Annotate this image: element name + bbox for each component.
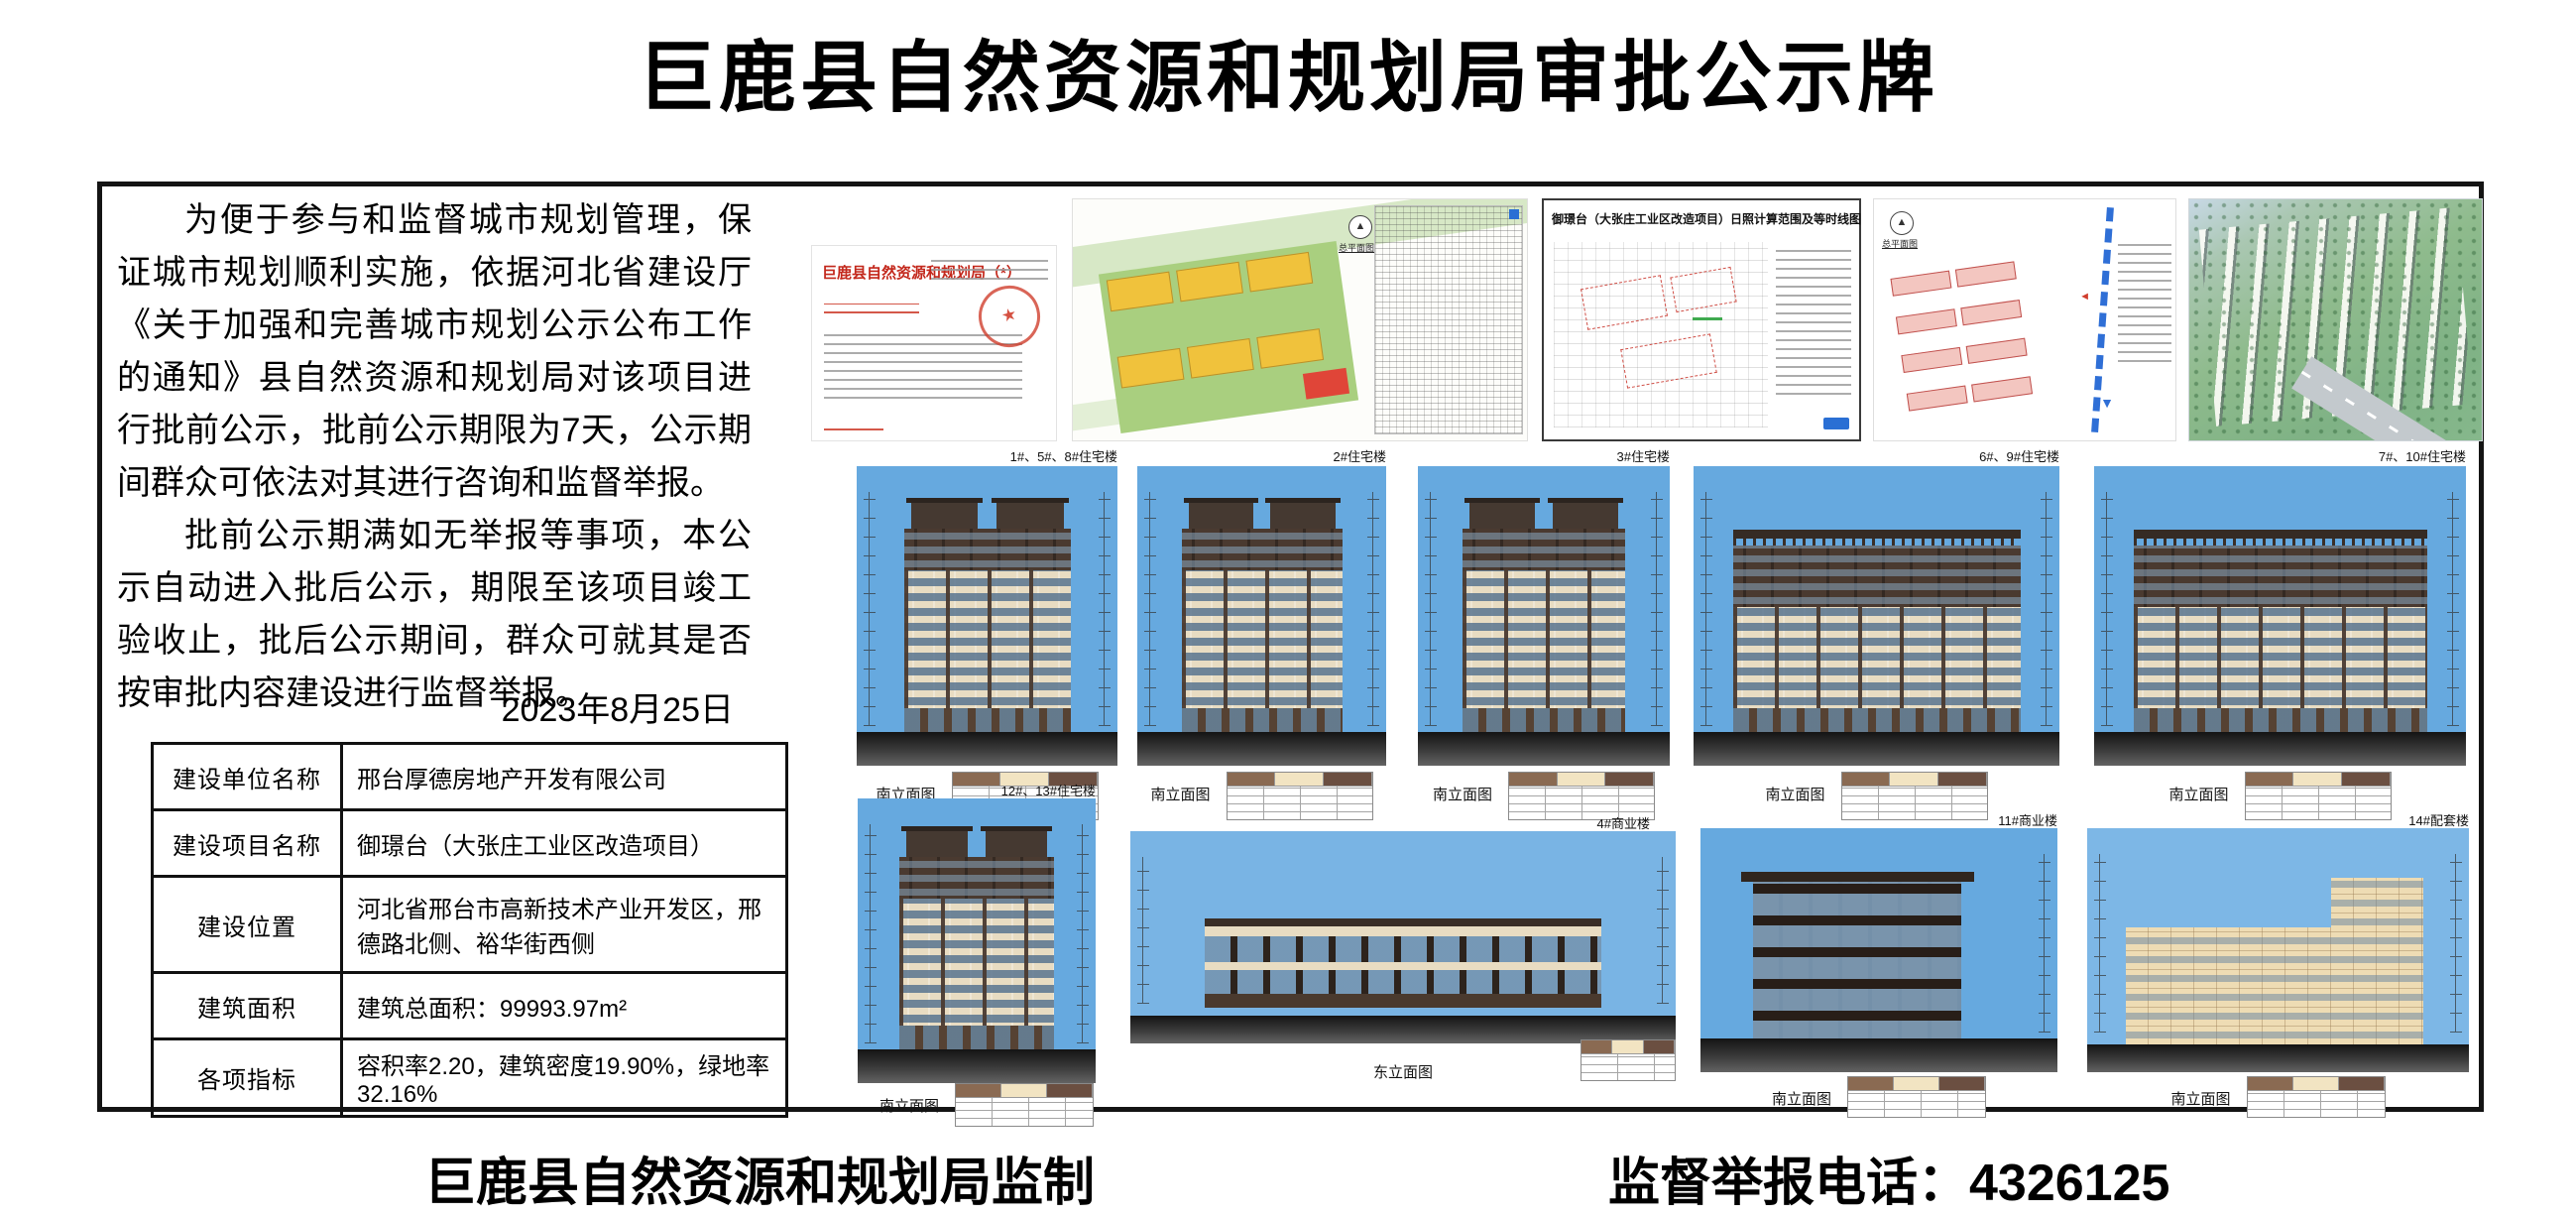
upper-floors [2134, 546, 2427, 607]
notice-text: 为便于参与和监督城市规划管理，保证城市规划顺利实施，依据河北省建设厅《关于加强和… [117, 194, 752, 720]
isoline-mark [1693, 317, 1722, 320]
commercial-building [1753, 872, 1961, 1042]
dimension-rail [2101, 492, 2113, 726]
middle-floors [904, 570, 1071, 708]
sunshine-plan-drawing [1554, 242, 1768, 427]
material-legend [1581, 1039, 1676, 1081]
document-small-text [931, 254, 1048, 280]
row-label: 建设项目名称 [153, 810, 342, 877]
elevation-panel-1-5-8 [857, 466, 1117, 766]
elevation-label: 2#住宅楼 [1137, 446, 1392, 465]
elevation-caption: 南立面图 [1772, 1076, 1831, 1109]
roof-caps [904, 503, 1071, 529]
building-footprint [1901, 347, 1962, 373]
ground-strip [1694, 732, 2059, 766]
dimension-rail [1700, 492, 1712, 726]
master-plan-label: 总平面图 [1882, 237, 1918, 250]
wall-band [1205, 926, 1601, 936]
elevation-caption: 南立面图 [1433, 772, 1492, 804]
dimension-rail [1137, 857, 1149, 1004]
table-row: 建设位置河北省邢台市高新技术产业开发区，邢德路北侧、裕华街西侧 [153, 877, 787, 973]
boundary-arrow-icon: ▼ [2100, 395, 2114, 411]
building-outline [1620, 333, 1717, 388]
wall-band [1205, 962, 1601, 970]
north-arrow-icon: ▲ [1890, 211, 1914, 235]
ground-strip [1418, 732, 1670, 766]
row-value: 容积率2.20，建筑密度19.90%，绿地率32.16% [342, 1039, 787, 1117]
middle-floors [1182, 570, 1343, 708]
table-row: 建筑面积建筑总面积：99993.97m² [153, 973, 787, 1039]
elevation-caption: 南立面图 [879, 1083, 939, 1116]
building-block [1187, 338, 1254, 379]
middle-floors [2134, 607, 2427, 708]
building-footprint [1960, 300, 2022, 325]
dimension-rail [2450, 854, 2462, 1033]
upper-floors [1733, 546, 2021, 607]
entrance-marker-icon: ◄ [2079, 291, 2090, 303]
footer-issuer: 巨鹿县自然资源和规划局监制 [424, 1141, 1095, 1215]
elevation-label: 14#配套楼 [2087, 810, 2475, 829]
elevation-label: 3#住宅楼 [1418, 446, 1676, 465]
base [1205, 994, 1601, 1008]
doc-number-line [824, 304, 919, 313]
building-footprint [1890, 271, 1951, 297]
sunshine-diagram-title: 御璟台（大张庄工业区改造项目）日照计算范围及等时线图 [1552, 210, 1853, 227]
material-legend [1847, 1076, 1986, 1118]
elevation-caption: 南立面图 [1765, 772, 1824, 804]
dimension-rail [1144, 492, 1156, 726]
elevation-label: 7#、10#住宅楼 [2094, 446, 2472, 465]
roof-caps [1182, 503, 1343, 529]
table-row: 建设单位名称邢台厚德房地产开发有限公司 [153, 744, 787, 810]
dimension-rail [1367, 492, 1379, 726]
ground-strip [2094, 732, 2466, 766]
notice-paragraph-1: 为便于参与和监督城市规划管理，保证城市规划顺利实施，依据河北省建设厅《关于加强和… [117, 194, 752, 510]
elevation-panel-14 [2087, 828, 2469, 1072]
building-cluster [1099, 241, 1358, 433]
roof-slab [2134, 530, 2427, 539]
support-building-tower [2331, 878, 2422, 1044]
caption-row: 南立面图 [1700, 1076, 2057, 1118]
panel-approval-document: 巨鹿县自然资源和规划局（*） [811, 245, 1057, 441]
elevation-panel-6-9 [1694, 466, 2059, 766]
roof [1205, 918, 1601, 926]
elevation-panel-7-10 [2094, 466, 2466, 766]
building-block [1117, 347, 1185, 388]
window-row [1205, 970, 1601, 994]
row-label: 建设单位名称 [153, 744, 342, 810]
dimension-rail [1657, 857, 1669, 1004]
residential-tower [1463, 503, 1625, 736]
project-info-table: 建设单位名称邢台厚德房地产开发有限公司 建设项目名称御璟台（大张庄工业区改造项目… [151, 742, 788, 1118]
row-label: 建设位置 [153, 877, 342, 973]
building-block [1256, 328, 1324, 369]
ground-strip [2087, 1044, 2469, 1072]
roof-slab [1733, 530, 2021, 539]
building-footprint [1896, 308, 1957, 334]
building-outline [1581, 275, 1668, 330]
residential-tower [899, 831, 1054, 1053]
notice-date: 2023年8月25日 [117, 682, 734, 731]
dimension-rail [1077, 824, 1089, 1043]
building-footprint [1966, 338, 2028, 364]
row-value: 御璟台（大张庄工业区改造项目） [342, 810, 787, 877]
building-block [1245, 252, 1313, 293]
elevation-label: 11#商业楼 [1700, 810, 2063, 829]
elevation-label: 6#、9#住宅楼 [1694, 446, 2065, 465]
upper-floors [904, 529, 1071, 570]
panel-master-plan: ▲ 总平面图 ▼ ◄ [1873, 198, 2176, 441]
overhang-roof [1741, 872, 1974, 882]
site-plan-label: 总平面图 [1339, 241, 1374, 254]
caption-row: 南立面图 [2087, 1076, 2469, 1118]
north-arrow-icon: ▲ [1348, 215, 1372, 239]
residential-tower [1182, 503, 1343, 736]
upper-floors [899, 857, 1054, 899]
support-building-main [2126, 927, 2347, 1044]
residential-slab [2134, 530, 2427, 736]
highlighted-building-block [1303, 368, 1349, 400]
building-footprint [1955, 261, 2017, 287]
residential-tower [904, 503, 1071, 736]
commercial-building [1205, 918, 1601, 1014]
middle-floors [899, 899, 1054, 1026]
material-legend [2247, 1076, 2386, 1118]
dimension-rail [2447, 492, 2459, 726]
roof-railing [1733, 539, 2021, 546]
row-value: 建筑总面积：99993.97m² [342, 973, 787, 1039]
building-block [1176, 262, 1243, 303]
dimension-rail [2041, 492, 2052, 726]
elevation-panel-12-13 [858, 798, 1096, 1083]
legend-chip [1509, 209, 1519, 219]
doc-footer-line [824, 422, 883, 430]
glass-facade [1753, 882, 1961, 1042]
row-label: 各项指标 [153, 1039, 342, 1117]
upper-floors [1463, 529, 1625, 570]
elevation-label: 12#、13#住宅楼 [858, 781, 1102, 799]
sunshine-notes-text [1776, 246, 1851, 395]
caption-row: 南立面图 [838, 1083, 1135, 1127]
notice-board-page: 巨鹿县自然资源和规划局审批公示牌 为便于参与和监督城市规划管理，保证城市规划顺利… [0, 0, 2576, 1218]
page-title: 巨鹿县自然资源和规划局审批公示牌 [0, 16, 2576, 127]
elevation-panel-4 [1130, 831, 1676, 1043]
building-block [1107, 272, 1174, 312]
plan-notes-text [2118, 243, 2171, 362]
elevation-label: 4#商业楼 [1130, 813, 1676, 832]
cad-site-plan [1374, 205, 1523, 434]
roof-caps [1463, 503, 1625, 529]
upper-floors [1182, 529, 1343, 570]
roof-railing [2134, 539, 2427, 546]
ground-strip [1700, 1038, 2057, 1072]
building-footprint [1907, 385, 1968, 411]
ground-strip [1137, 732, 1386, 766]
dimension-rail [1099, 492, 1111, 726]
building-footprint [1971, 376, 2033, 402]
dimension-rail [864, 492, 876, 726]
row-value: 河北省邢台市高新技术产业开发区，邢德路北侧、裕华街西侧 [342, 877, 787, 973]
dimension-rail [2094, 854, 2106, 1033]
elevation-caption: 南立面图 [1150, 772, 1210, 804]
elevation-panel-3 [1418, 466, 1670, 766]
table-row: 建设项目名称御璟台（大张庄工业区改造项目） [153, 810, 787, 877]
elevation-caption: 南立面图 [2170, 1076, 2230, 1109]
panel-sunshine-diagram: 御璟台（大张庄工业区改造项目）日照计算范围及等时线图 [1542, 198, 1861, 441]
residential-slab [1733, 530, 2021, 736]
row-label: 建筑面积 [153, 973, 342, 1039]
table-row: 各项指标容积率2.20，建筑密度19.90%，绿地率32.16% [153, 1039, 787, 1117]
footer-hotline: 监督举报电话：4326125 [1608, 1141, 2169, 1215]
dimension-rail [865, 824, 877, 1043]
dimension-rail [1425, 492, 1437, 726]
dimension-rail [2039, 854, 2050, 1033]
panel-site-plan-color: ▲ 总平面图 [1072, 198, 1528, 441]
window-row [1205, 936, 1601, 962]
ground-strip [858, 1049, 1096, 1083]
ground-strip [857, 732, 1117, 766]
elevation-panel-11 [1700, 828, 2057, 1072]
middle-floors [1463, 570, 1625, 708]
row-value: 邢台厚德房地产开发有限公司 [342, 744, 787, 810]
elevation-panel-2 [1137, 466, 1386, 766]
title-block-chip [1823, 418, 1849, 429]
material-legend [955, 1083, 1094, 1127]
elevation-caption: 南立面图 [2168, 772, 2228, 804]
elevation-label: 1#、5#、8#住宅楼 [857, 446, 1123, 465]
middle-floors [1733, 607, 2021, 708]
building-outline [1670, 267, 1736, 312]
roof-caps [899, 831, 1054, 857]
building-footprints [1890, 253, 2097, 426]
dimension-rail [1651, 492, 1663, 726]
panel-aerial-render [2188, 198, 2483, 441]
